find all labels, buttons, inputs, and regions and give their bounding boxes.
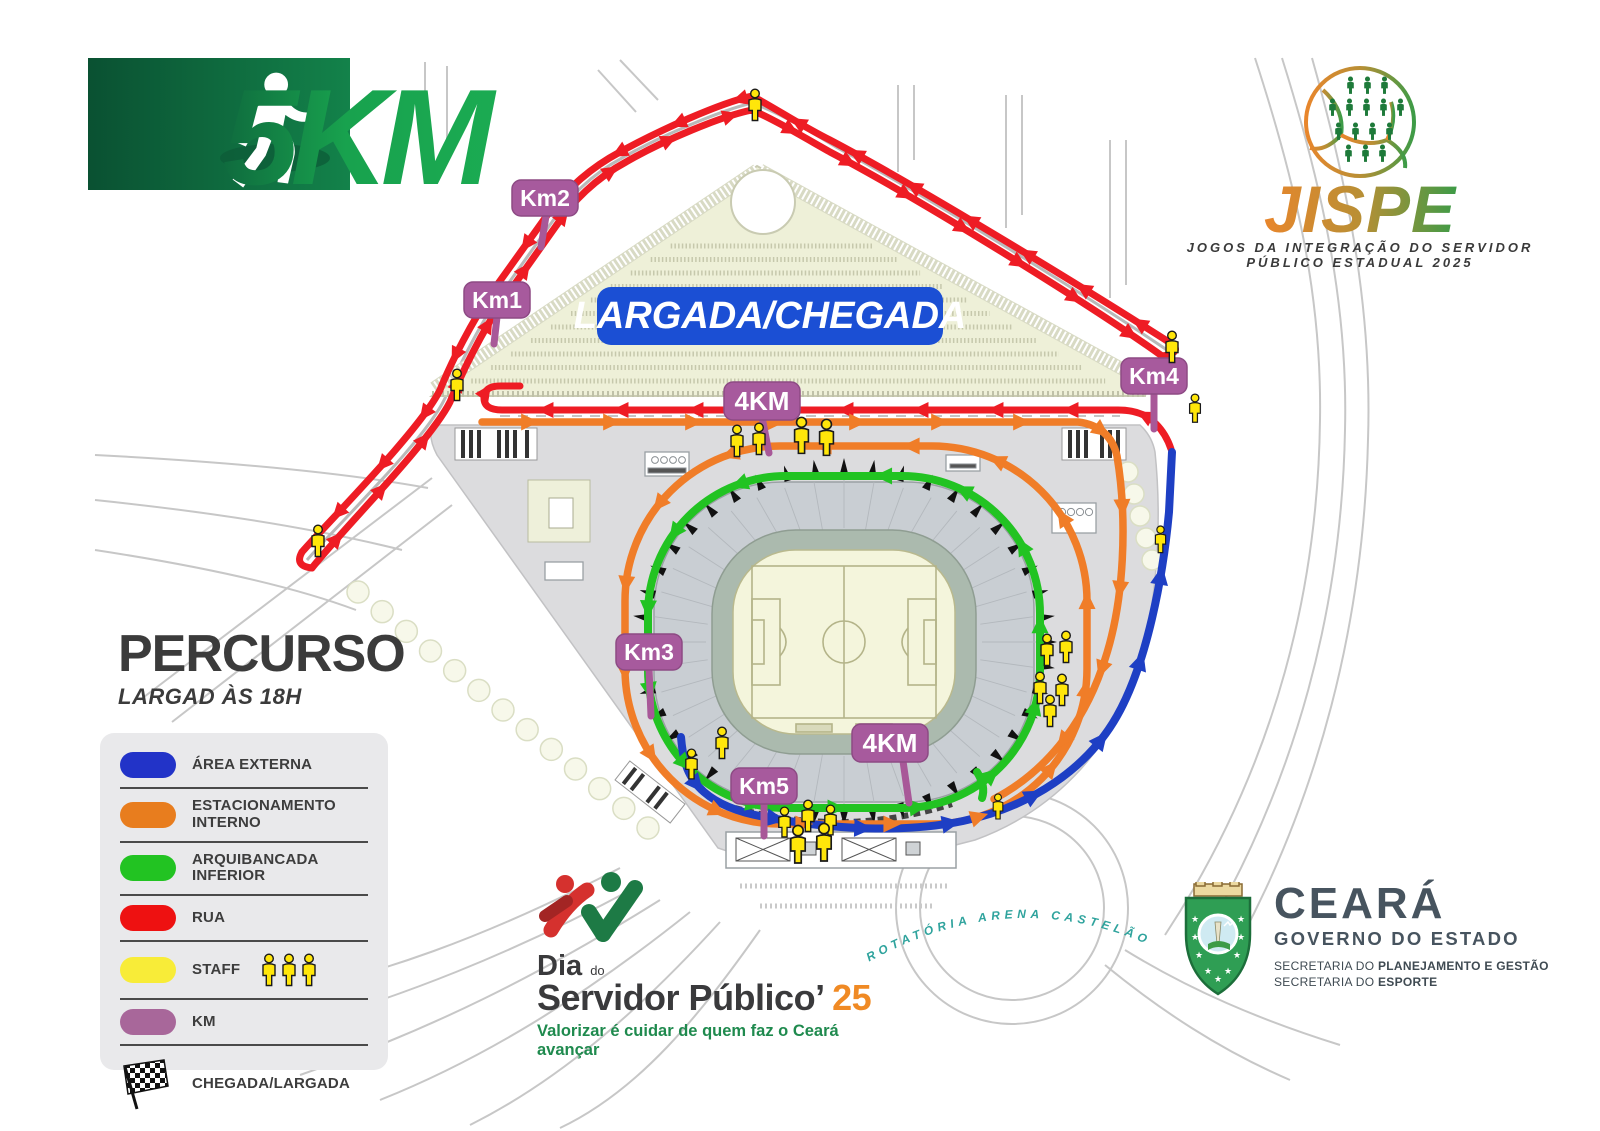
svg-text:★: ★ [1224,966,1232,976]
secretariat-1-prefix: SECRETARIA DO [1274,959,1378,973]
start-finish-label: LARGADA/CHEGADA [574,295,967,337]
marker-km3-label: Km3 [624,639,674,665]
secretariat-lines: SECRETARIA DO PLANEJAMENTO E GESTÃO SECR… [1274,959,1549,989]
marker-km3: Km3 [616,634,682,670]
legend-row-staff: STAFF [120,942,368,1000]
svg-text:★: ★ [1204,966,1212,976]
start-finish-banner: LARGADA/CHEGADA [574,287,967,345]
svg-text:★: ★ [1214,974,1222,984]
rua-swatch [120,905,176,931]
svg-text:★: ★ [1237,932,1245,942]
distance-text: 5KM [223,61,497,203]
government-logo: ★★★ ★★★ ★★★ CEARÁ GOVERNO DO ESTADO SECR… [1178,882,1578,1012]
soccer-ball-icon [1306,68,1414,176]
government-text: CEARÁ GOVERNO DO ESTADO SECRETARIA DO PL… [1274,882,1549,989]
arquibancada-swatch [120,855,176,881]
jispe-subtitle-2: PÚBLICO ESTADUAL 2025 [1246,255,1473,270]
event-logo-line2: Servidor Público’ 25 [537,979,897,1017]
marker-4km-top-label: 4KM [735,386,790,416]
secretariat-1-name: PLANEJAMENTO E GESTÃO [1378,959,1549,973]
svg-text:★: ★ [1195,950,1203,960]
secretariat-2-prefix: SECRETARIA DO [1274,975,1378,989]
checkered-flag-icon [120,1058,176,1110]
area-externa-label: ÁREA EXTERNA [192,757,312,774]
race-distance-logo: 5KM [85,48,605,203]
staff-label: STAFF [192,962,240,979]
course-start-time: LARGAD ÀS 18H [118,684,405,710]
marker-km5-label: Km5 [739,773,789,799]
event-logo-marks [537,870,717,958]
marker-4km-top: 4KM [724,382,800,420]
marker-4km-bottom: 4KM [852,724,928,762]
do-word: do [590,963,604,978]
event-year: 25 [832,977,871,1018]
plaza-gate-north-left [455,428,537,460]
staff-swatch [120,957,176,983]
course-info: PERCURSO LARGAD ÀS 18H [118,628,405,710]
marker-km5: Km5 [731,768,797,804]
km-swatch [120,1009,176,1035]
marker-km4: Km4 [1121,358,1187,394]
servidor-publico-text: Servidor Público’ [537,977,823,1018]
plaza-garden [528,480,590,542]
rua-label: RUA [192,910,225,927]
secretariat-2: SECRETARIA DO ESPORTE [1274,975,1549,989]
marker-km1-label: Km1 [472,287,522,313]
marker-4km-bottom-label: 4KM [863,728,918,758]
svg-text:★: ★ [1191,932,1199,942]
event-logo: Dia do Servidor Público’ 25 Valorizar é … [537,870,897,1060]
svg-text:★: ★ [1233,950,1241,960]
government-line: GOVERNO DO ESTADO [1274,928,1549,950]
state-name: CEARÁ [1274,882,1549,926]
secretariat-1: SECRETARIA DO PLANEJAMENTO E GESTÃO [1274,959,1549,973]
jispe-subtitle-1: JOGOS DA INTEGRAÇÃO DO SERVIDOR [1187,240,1534,255]
legend-row-km: KM [120,1000,368,1046]
svg-text:★: ★ [1237,914,1245,924]
event-logo-line1: Dia do [537,953,897,979]
course-map-poster: Km2 Km1 Km3 Km4 Km5 4KM 4KM [0,0,1600,1131]
legend-row-chegada: CHEGADA/LARGADA [120,1046,368,1119]
legend-panel: ÁREA EXTERNA ESTACIONAMENTO INTERNO ARQU… [100,733,388,1070]
svg-text:★: ★ [1191,914,1199,924]
marker-km1: Km1 [464,282,530,318]
jispe-logo: JISPE JOGOS DA INTEGRAÇÃO DO SERVIDOR PÚ… [1155,40,1565,280]
estacionamento-label: ESTACIONAMENTO INTERNO [192,798,342,832]
ceara-coat-of-arms: ★★★ ★★★ ★★★ [1178,882,1258,1012]
chegada-largada-label: CHEGADA/LARGADA [192,1076,350,1093]
parking-roundabout [731,170,795,234]
event-tagline: Valorizar é cuidar de quem faz o Ceará a… [537,1022,897,1060]
legend-row-area-externa: ÁREA EXTERNA [120,743,368,789]
staff-figures-icon [258,951,320,989]
km-label: KM [192,1014,216,1031]
area-externa-swatch [120,752,176,778]
secretariat-2-name: ESPORTE [1378,975,1437,989]
course-title: PERCURSO [118,628,405,680]
legend-row-rua: RUA [120,896,368,942]
marker-km4-label: Km4 [1129,363,1179,389]
jispe-name: JISPE [1264,172,1457,246]
arquibancada-label: ARQUIBANCADA INFERIOR [192,852,342,886]
legend-row-arquibancada: ARQUIBANCADA INFERIOR [120,843,368,897]
legend-row-estacionamento: ESTACIONAMENTO INTERNO [120,789,368,843]
estacionamento-swatch [120,802,176,828]
